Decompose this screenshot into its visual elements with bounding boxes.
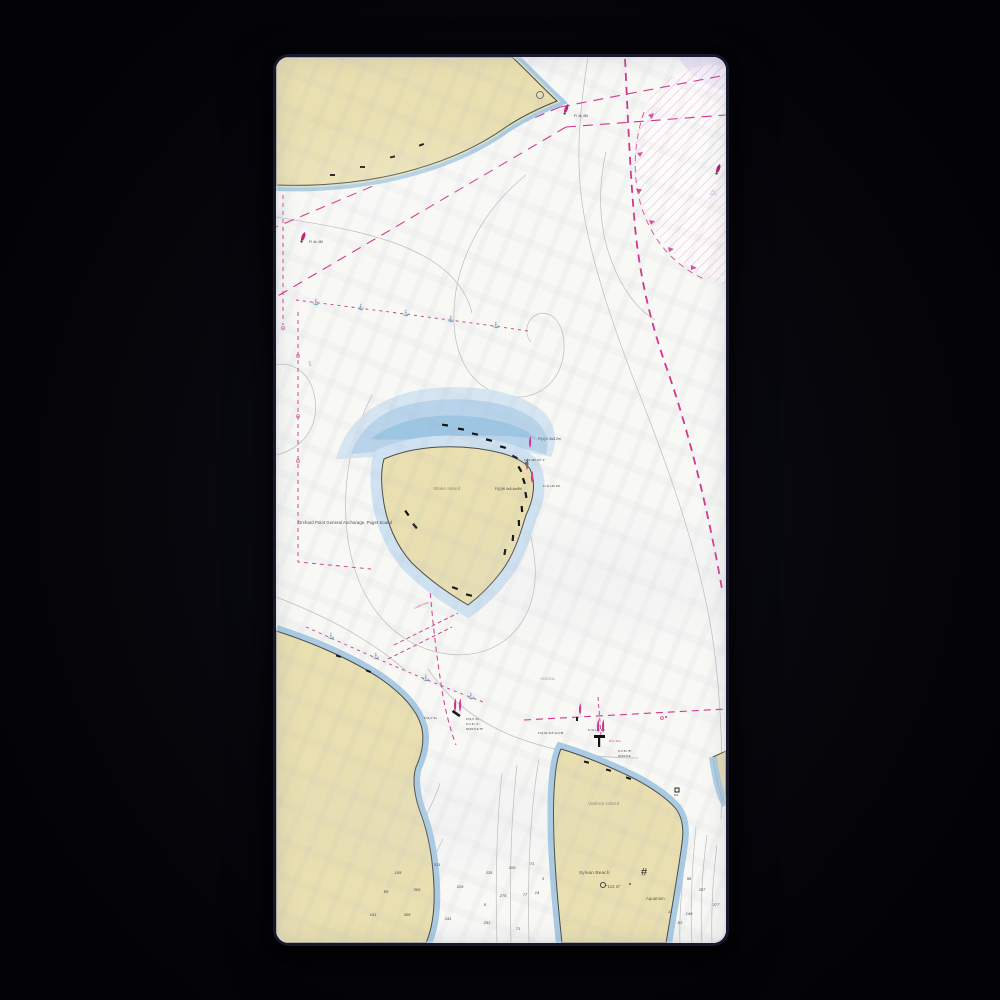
chart-artwork <box>276 57 726 943</box>
photo-stage: Orchard Point General Anchorage, Puget S… <box>0 0 1000 1000</box>
towel: Orchard Point General Anchorage, Puget S… <box>276 57 726 943</box>
